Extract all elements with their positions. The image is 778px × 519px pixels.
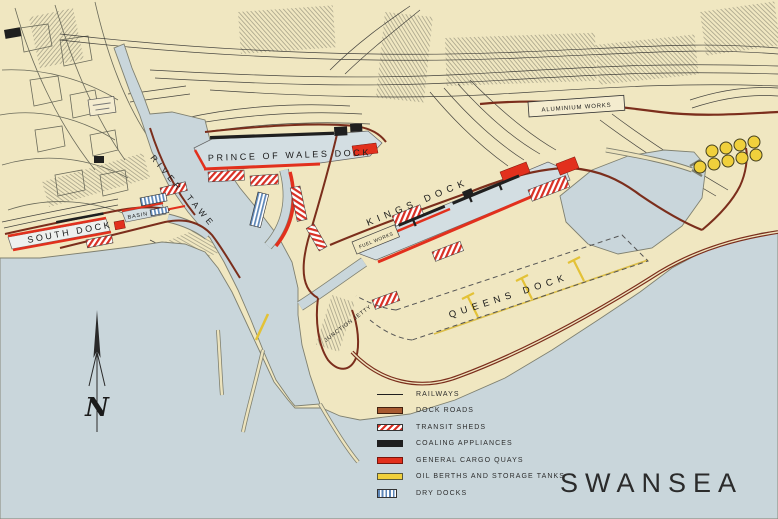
legend-label: TRANSIT SHEDS [416,424,486,431]
railways-line-swatch [377,394,403,395]
legend: RAILWAYS DOCK ROADS TRANSIT SHEDS COALIN… [377,386,565,502]
legend-label: DOCK ROADS [416,407,474,414]
legend-row-oil-berths: OIL BERTHS AND STORAGE TANKS [377,469,565,486]
legend-row-coaling: COALING APPLIANCES [377,436,565,453]
map-title: SWANSEA [560,468,743,499]
small-map-box [88,96,116,115]
oil-berths-swatch [377,473,403,480]
coaling-appliances-swatch [377,440,403,447]
legend-row-dock-roads: DOCK ROADS [377,403,565,420]
north-letter: N [84,393,110,423]
legend-label: OIL BERTHS AND STORAGE TANKS [416,473,565,480]
legend-row-dry-docks: DRY DOCKS [377,485,565,502]
legend-label: RAILWAYS [416,391,460,398]
transit-sheds-swatch [377,424,403,431]
legend-row-transit-sheds: TRANSIT SHEDS [377,419,565,436]
dry-docks-swatch [377,489,397,498]
legend-row-cargo-quays: GENERAL CARGO QUAYS [377,452,565,469]
legend-label: COALING APPLIANCES [416,440,513,447]
swansea-dock-map: ALUMINIUM WORKS FUEL WORKS SOUTH DOCK BA… [0,0,778,519]
legend-label: DRY DOCKS [416,490,467,497]
dock-roads-swatch [377,407,403,414]
legend-label: GENERAL CARGO QUAYS [416,457,524,464]
general-cargo-quays-swatch [377,457,403,464]
legend-row-railways: RAILWAYS [377,386,565,403]
